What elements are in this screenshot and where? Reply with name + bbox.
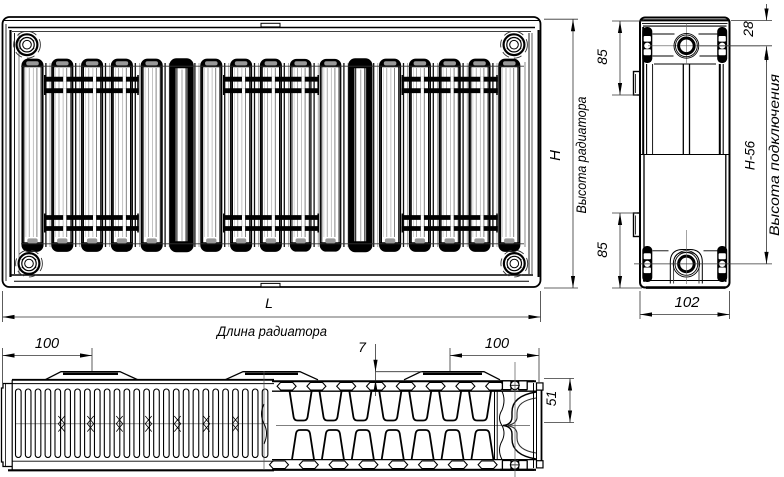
svg-text:Высота радиатора: Высота радиатора [574, 96, 589, 213]
svg-text:H: H [547, 150, 564, 161]
svg-text:51: 51 [543, 391, 559, 407]
svg-text:85: 85 [594, 49, 610, 65]
svg-text:100: 100 [35, 336, 59, 352]
svg-text:28: 28 [740, 21, 756, 38]
svg-text:7: 7 [358, 339, 367, 355]
svg-text:100: 100 [485, 336, 509, 352]
svg-text:H-56: H-56 [743, 140, 758, 170]
svg-text:85: 85 [594, 242, 610, 258]
svg-text:Длина радиатора: Длина радиатора [215, 324, 327, 339]
svg-text:102: 102 [674, 294, 700, 311]
svg-text:Высота подключения: Высота подключения [767, 74, 782, 236]
svg-text:L: L [265, 295, 273, 311]
